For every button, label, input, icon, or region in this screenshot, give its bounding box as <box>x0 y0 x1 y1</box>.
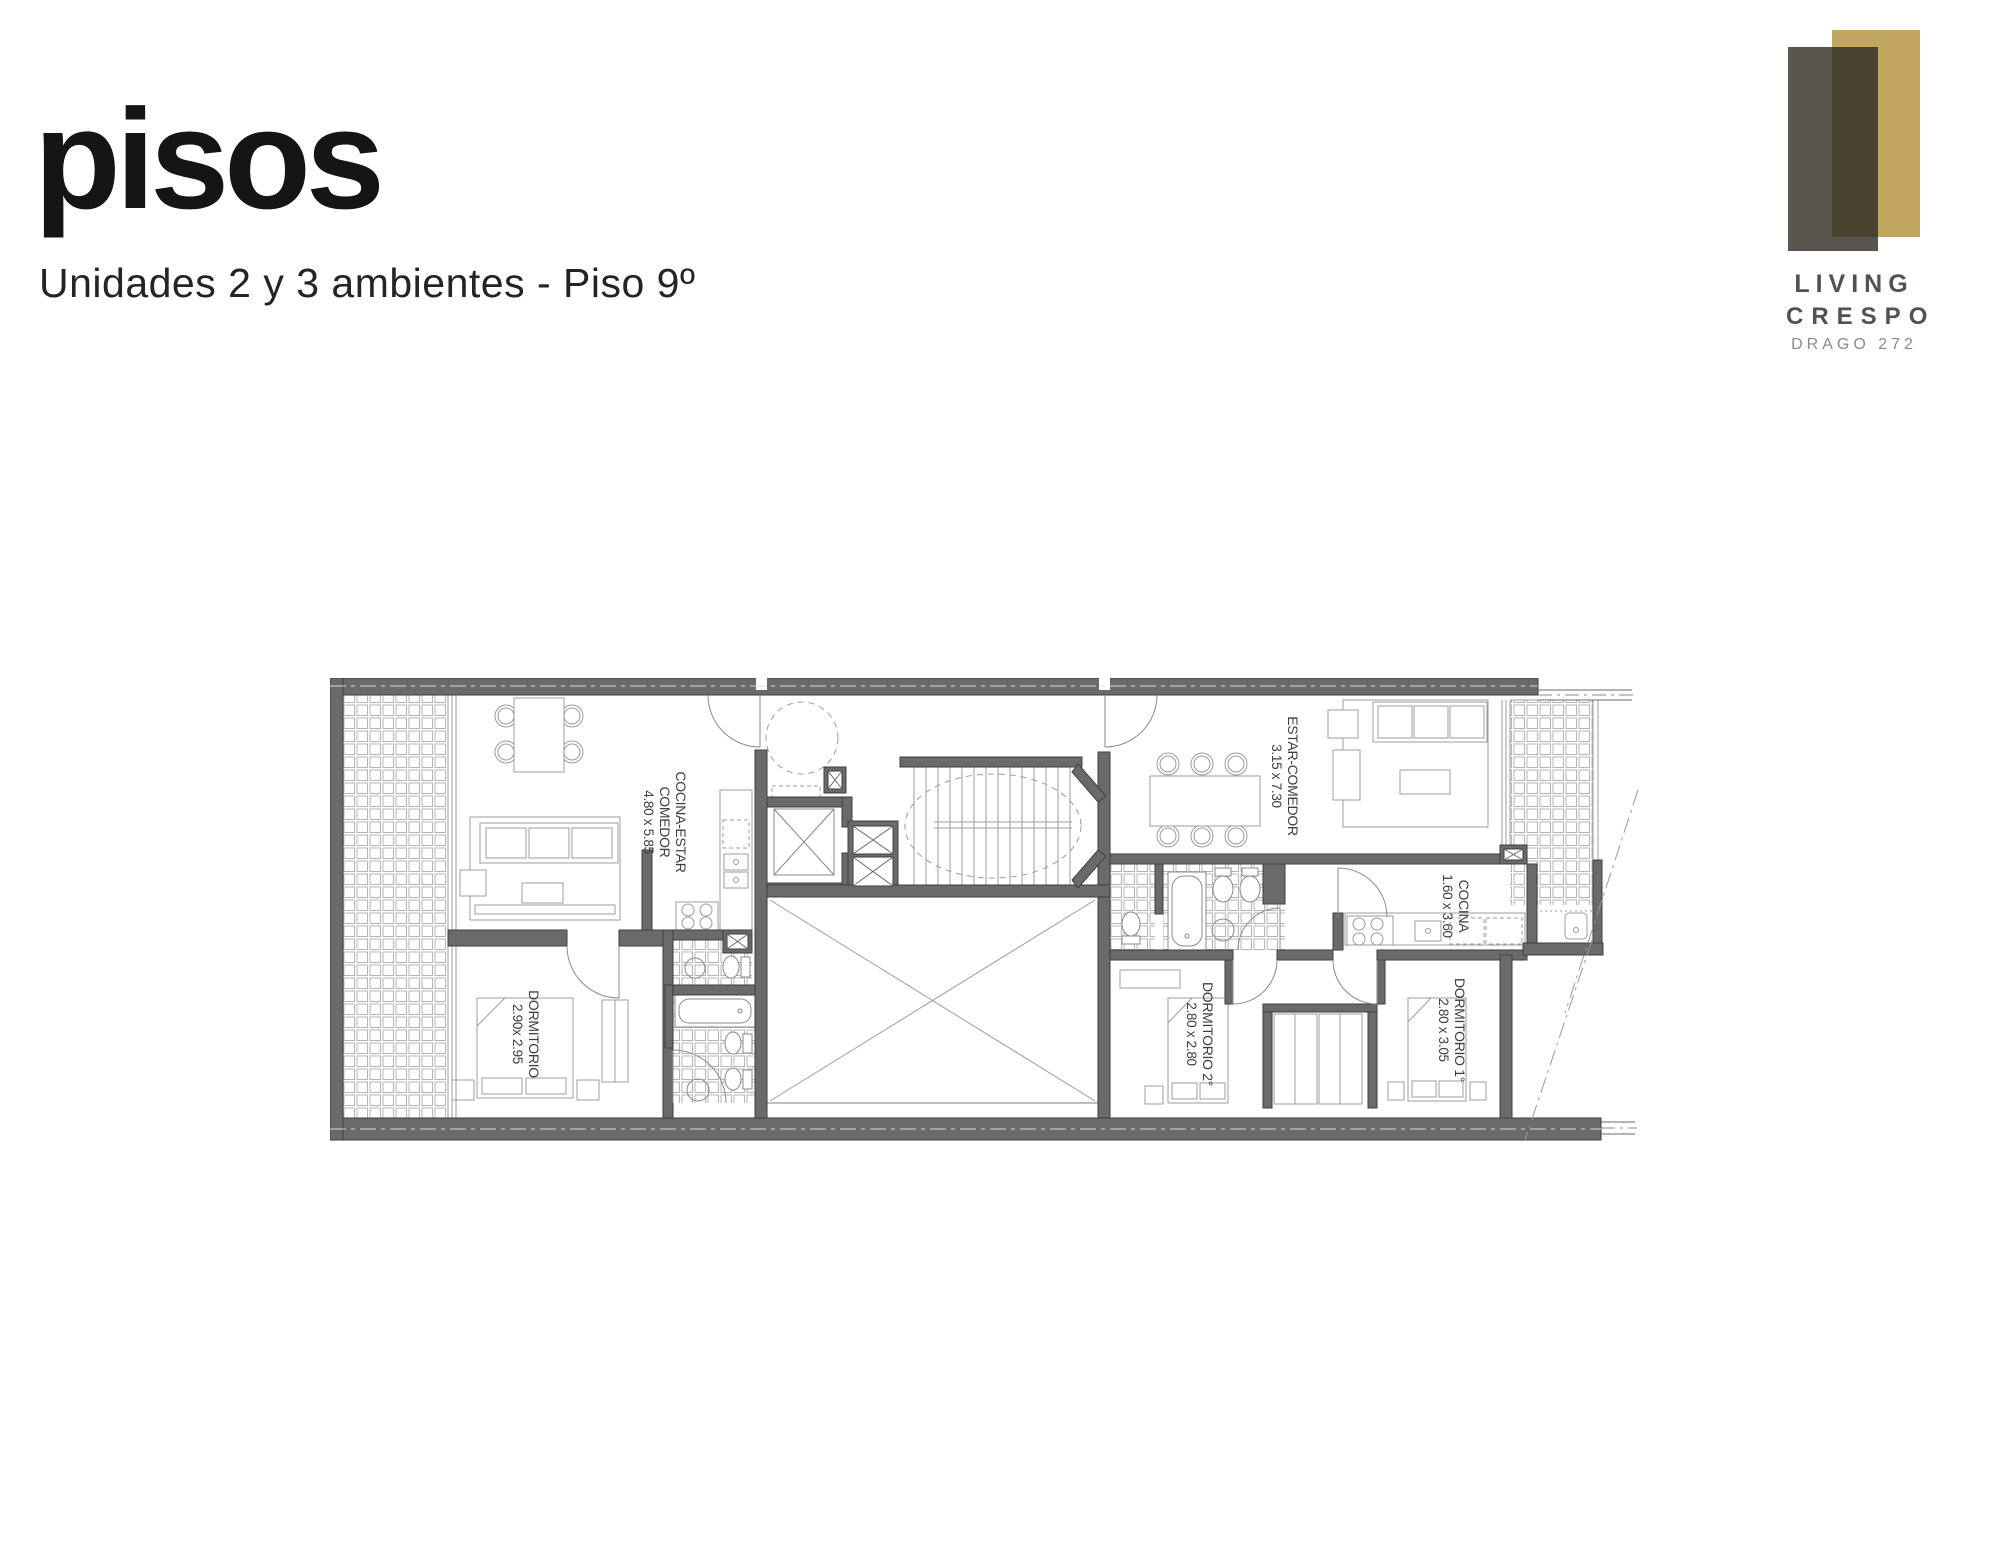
label-living-right-name: ESTAR-COMEDOR <box>1285 716 1301 836</box>
page-subtitle: Unidades 2 y 3 ambientes - Piso 9º <box>39 260 695 307</box>
dining-set-left <box>495 698 583 772</box>
label-bedroom2-name: DORMITORIO 2° <box>1200 982 1216 1086</box>
logo-overlap-rect-icon <box>1832 47 1878 237</box>
label-living-left-line1: COCINA-ESTAR <box>673 771 689 872</box>
label-bedroom2-dims: 2.80 x 2.80 <box>1184 1002 1199 1066</box>
elevator <box>774 809 834 875</box>
label-living-left-line2: COMEDOR <box>657 786 673 857</box>
balcony-right <box>1510 700 1593 943</box>
label-kitchen-right-dims: 1.60 x 3.60 <box>1440 874 1455 938</box>
brand-address: DRAGO 272 <box>1786 336 1922 354</box>
label-bedroom-left-dims: 2.90x 2.95 <box>510 1004 525 1064</box>
air-shaft <box>767 900 1110 1103</box>
balcony-left <box>343 695 448 1118</box>
brand-name-line2: CRESPO <box>1786 303 1922 331</box>
label-bedroom-left-name: DORMITORIO <box>526 990 542 1078</box>
closets-right <box>1274 1014 1362 1104</box>
kitchen-right <box>1345 913 1525 945</box>
brand-logo: LIVING CRESPO DRAGO 272 <box>1786 30 1922 360</box>
label-bedroom1-name: DORMITORIO 1° <box>1452 978 1468 1082</box>
label-living-left-dims: 4.80 x 5.85 <box>641 790 656 854</box>
living-set-right <box>1328 700 1488 827</box>
wc-right-fixtures <box>1122 912 1140 944</box>
staircase <box>905 767 1081 885</box>
label-bedroom1-dims: 2.80 x 3.05 <box>1436 998 1451 1062</box>
label-living-right-dims: 3.15 x 7.30 <box>1269 744 1284 808</box>
living-set-left <box>460 817 620 920</box>
label-living-right: ESTAR-COMEDOR 3.15 x 7.30 <box>1269 716 1301 836</box>
page-title: pisos <box>34 96 380 224</box>
label-kitchen-right-name: COCINA <box>1456 880 1472 934</box>
brand-name-line1: LIVING <box>1786 270 1922 299</box>
floorplan-drawing: COCINA-ESTAR COMEDOR 4.80 x 5.85 DORMITO… <box>330 678 1640 1142</box>
dining-set-right <box>1150 753 1260 847</box>
brochure-page: pisos Unidades 2 y 3 ambientes - Piso 9º… <box>0 0 1999 1556</box>
